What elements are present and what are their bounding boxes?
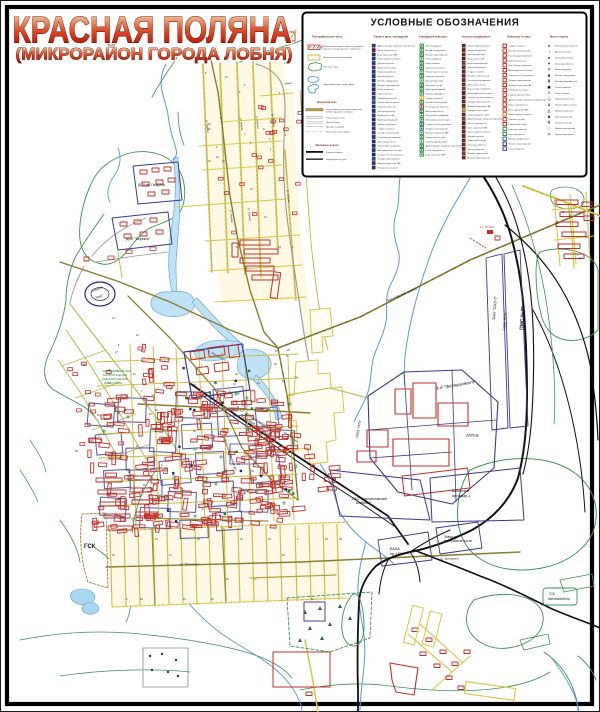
svg-text:Кинотеатр летний: Кинотеатр летний <box>468 58 485 61</box>
svg-text:Дорожная сеть: Дорожная сеть <box>317 100 337 104</box>
svg-text:♟: ♟ <box>547 73 551 78</box>
svg-text:Больница районная: Больница районная <box>509 128 527 131</box>
svg-text:Музей краеведческий: Музей краеведческий <box>555 127 575 130</box>
svg-text:Банк, отделение КМБ: Банк, отделение КМБ <box>426 154 447 156</box>
svg-text:Гостиница дом приезжих: Гостиница дом приезжих <box>378 137 401 139</box>
svg-text:Милиция отделение ГАИ: Милиция отделение ГАИ <box>468 105 492 108</box>
svg-text:Рынок городской: Рынок городской <box>555 86 571 89</box>
svg-text:Магазин промтоварный: Магазин промтоварный <box>555 80 577 83</box>
svg-text:Магазин промтоварный: Магазин промтоварный <box>378 84 400 87</box>
svg-text:Бассейн плавательный: Бассейн плавательный <box>378 132 400 135</box>
svg-text:☗: ☗ <box>547 84 551 89</box>
svg-text:Кинотеатр летний: Кинотеатр летний <box>426 84 443 87</box>
svg-text:♛: ♛ <box>547 120 551 125</box>
svg-text:Поликлиника город.: Поликлиника город. <box>509 124 528 126</box>
svg-text:♞: ♞ <box>547 114 551 119</box>
svg-text:Станция тех. обслуживания: Станция тех. обслуживания <box>426 124 452 126</box>
svg-text:Детский сад ясли: Детский сад ясли <box>555 51 571 54</box>
svg-text:Аптека дежурная: Аптека дежурная <box>509 133 525 136</box>
svg-text:Автостанция кассы: Автостанция кассы <box>468 83 486 86</box>
svg-text:Магазин продуктовый: Магазин продуктовый <box>426 49 446 52</box>
svg-text:Ж-д станция платформа: Ж-д станция платформа <box>426 114 450 117</box>
svg-text:Рынок городской: Рынок городской <box>378 88 394 91</box>
svg-text:УСЛОВНЫЕ ОБОЗНАЧЕНИЯ: УСЛОВНЫЕ ОБОЗНАЧЕНИЯ <box>371 18 520 29</box>
svg-text:"Автолюбитель": "Автолюбитель" <box>547 597 571 601</box>
svg-text:Кафе столовая: Кафе столовая <box>378 92 392 95</box>
svg-text:Магазин продуктовый: Магазин продуктовый <box>378 79 398 82</box>
svg-text:(МИКРОРАЙОН ГОРОДА ЛОБНЯ): (МИКРОРАЙОН ГОРОДА ЛОБНЯ) <box>16 45 293 64</box>
svg-text:Автозаправочная станция: Автозаправочная станция <box>468 92 492 95</box>
svg-text:Милиция отделение ГАИ: Милиция отделение ГАИ <box>509 84 533 87</box>
svg-text:Ж-д станция платформа: Ж-д станция платформа <box>378 145 402 148</box>
svg-text:Магазин промтоварный: Магазин промтоварный <box>509 143 531 146</box>
svg-text:Стадион спортзал: Стадион спортзал <box>378 128 396 130</box>
svg-text:Милиция отделение ГАИ: Милиция отделение ГАИ <box>426 132 450 135</box>
svg-text:Лес, парк, сквер: Лес, парк, сквер <box>323 67 339 69</box>
svg-text:Ремонт обуви и охраны: Ремонт обуви и охраны <box>468 46 490 48</box>
svg-text:Места отдыха: Места отдыха <box>550 35 569 39</box>
svg-text:Библиотека детская: Библиотека детская <box>378 107 397 109</box>
svg-text:Сбербанк филиал №25: Сбербанк филиал №25 <box>468 113 491 116</box>
svg-text:Детский сад ясли: Детский сад ясли <box>468 135 484 138</box>
svg-text:Аптека дежурная: Аптека дежурная <box>378 75 394 78</box>
svg-text:Автозаправочная станция: Автозаправочная станция <box>509 69 533 72</box>
svg-text:☽: ☽ <box>547 49 551 54</box>
svg-text:Пожарная часть депо: Пожарная часть депо <box>378 167 399 169</box>
svg-text:Вабинский: Вабинский <box>452 489 469 493</box>
svg-text:Милиция отделение ГАИ: Милиция отделение ГАИ <box>378 162 402 165</box>
svg-text:Дом культуры клуб: Дом культуры клуб <box>378 111 396 113</box>
svg-text:Проезды и проулки: Проезды и проулки <box>326 127 344 129</box>
svg-text:Аптека дежурная: Аптека дежурная <box>426 45 442 48</box>
svg-text:Дом культуры клуб: Дом культуры клуб <box>426 80 444 82</box>
svg-text:Почта: отделение св.: Почта: отделение св. <box>378 50 398 52</box>
svg-text:Станция тех. обслуживания: Станция тех. обслуживания <box>509 75 535 77</box>
svg-text:ул. Мичурина: ул. Мичурина <box>440 556 459 561</box>
svg-text:Автозаправочная станция: Автозаправочная станция <box>378 149 402 152</box>
svg-text:Школа средняя обществ.: Школа средняя обществ. <box>468 132 492 134</box>
svg-text:Администрация городского образ: Администрация городского образования <box>509 99 547 102</box>
svg-text:♝: ♝ <box>547 102 551 107</box>
svg-text:Больница районная: Больница районная <box>555 62 573 65</box>
svg-text:Парикмахерская быт.: Парикмахерская быт. <box>426 67 446 69</box>
svg-text:Библиотека детская: Библиотека детская <box>426 76 445 78</box>
svg-text:Церковь приходская: Церковь приходская <box>378 124 397 126</box>
svg-text:Кафе столовая: Кафе столовая <box>426 62 440 65</box>
svg-text:⛪: ⛪ <box>547 108 552 113</box>
svg-text:Станция тех. обслуживания: Станция тех. обслуживания <box>468 97 494 99</box>
svg-text:Почта: отделение св.: Почта: отделение св. <box>468 123 488 125</box>
svg-text:Магазин продуктовый: Магазин продуктовый <box>468 152 488 155</box>
svg-text:АТП-6: АТП-6 <box>466 433 479 438</box>
svg-text:Стадион спортзал: Стадион спортзал <box>468 71 486 73</box>
svg-text:Гидрография: реки, озёра, пруд: Гидрография: реки, озёра, пруды <box>323 83 354 86</box>
svg-text:Школа средняя обществ.: Школа средняя обществ. <box>378 59 402 61</box>
svg-text:Детский сад ясли: Детский сад ясли <box>378 62 394 65</box>
svg-text:Банк, отделение КМБ: Банк, отделение КМБ <box>509 109 530 111</box>
svg-text:Почта: отделение св.: Почта: отделение св. <box>426 150 446 152</box>
svg-text:Сбербанк филиал №25: Сбербанк филиал №25 <box>426 140 449 143</box>
svg-text:Транспорт и связь: Транспорт и связь <box>507 35 531 39</box>
svg-text:комбинат": комбинат" <box>356 501 371 505</box>
svg-text:Бассейн плавательный: Бассейн плавательный <box>426 101 448 104</box>
svg-text:Полевые и лесные дороги: Полевые и лесные дороги <box>326 131 350 133</box>
svg-text:Администрация городского образ: Администрация городского образования <box>378 45 416 48</box>
svg-text:♤: ♤ <box>547 126 551 131</box>
svg-text:Библиотека детская: Библиотека детская <box>555 111 574 113</box>
svg-text:Рынок городской: Рынок городской <box>509 148 525 151</box>
svg-text:♦: ♦ <box>548 43 550 48</box>
svg-text:Сбербанк филиал №25: Сбербанк филиал №25 <box>509 94 532 97</box>
svg-text:Магазин промтоварный: Магазин промтоварный <box>426 53 448 56</box>
svg-text:Автозаправочная станция: Автозаправочная станция <box>426 119 450 122</box>
svg-text:Дом культуры клуб: Дом культуры клуб <box>555 116 573 118</box>
svg-text:Телефон переговорный: Телефон переговорный <box>509 79 531 82</box>
svg-text:Гостиница дом приезжих: Гостиница дом приезжих <box>509 55 532 57</box>
svg-text:Пожарная часть депо: Пожарная часть депо <box>468 110 489 112</box>
svg-text:Школа средняя обществ.: Школа средняя обществ. <box>509 114 533 116</box>
svg-text:Учреждения культуры: Учреждения культуры <box>419 35 448 39</box>
svg-text:Аптека дежурная: Аптека дежурная <box>468 148 484 151</box>
svg-text:Ж-д станция платформа: Ж-д станция платформа <box>468 88 492 91</box>
svg-text:Школа средняя обществ.: Школа средняя обществ. <box>555 46 579 48</box>
svg-text:Гостиница дом приезжих: Гостиница дом приезжих <box>468 80 491 82</box>
svg-text:Автостанция кассы: Автостанция кассы <box>378 140 396 143</box>
svg-text:Парикмахерская быт.: Парикмахерская быт. <box>555 99 575 101</box>
svg-text:ДОЛ "Березка": ДОЛ "Березка" <box>126 237 151 241</box>
svg-text:Телефон переговорный: Телефон переговорный <box>468 101 490 104</box>
svg-text:ГСК: ГСК <box>84 544 96 550</box>
svg-text:пр. ЦЕН: пр. ЦЕН <box>390 552 405 556</box>
svg-text:Кафе столовая: Кафе столовая <box>555 92 569 95</box>
svg-text:Почта: отделение св.: Почта: отделение св. <box>509 104 529 106</box>
svg-text:Кинотеатр летний: Кинотеатр летний <box>378 114 395 117</box>
svg-text:♜: ♜ <box>547 78 551 83</box>
svg-text:Банк, отделение КМБ: Банк, отделение КМБ <box>378 54 399 56</box>
svg-text:Прочие улицы: Прочие улицы <box>326 122 340 124</box>
svg-text:Подъездные ж-д пути: Подъездные ж-д пути <box>326 159 346 161</box>
svg-text:Дом культуры клуб: Дом культуры клуб <box>468 54 486 56</box>
svg-text:Бассейн плавательный: Бассейн плавательный <box>468 75 490 78</box>
svg-text:ЗАСТРОЙКА: ЗАСТРОЙКА <box>104 381 122 385</box>
svg-text:Банки и проч. учреждения: Банки и проч. учреждения <box>374 35 408 39</box>
svg-text:Автостанция кассы: Автостанция кассы <box>426 110 444 113</box>
svg-text:Телефон переговорный: Телефон переговорный <box>378 158 400 161</box>
svg-text:Парикмахерская быт.: Парикмахерская быт. <box>378 98 398 100</box>
svg-text:Поликлиника город.: Поликлиника город. <box>555 57 574 59</box>
svg-text:ГСК: ГСК <box>549 592 555 596</box>
svg-text:Железные дороги: Железные дороги <box>315 143 339 147</box>
svg-text:Ремонт обуви и охраны: Ремонт обуви и охраны <box>555 105 577 107</box>
svg-text:Железные дороги: Железные дороги <box>326 152 343 154</box>
svg-text:Улицы других типов: Улицы других типов <box>326 117 345 119</box>
svg-text:Кинотеатр летний: Кинотеатр летний <box>555 121 572 124</box>
svg-text:Станция тех. обслуживания: Станция тех. обслуживания <box>378 154 404 156</box>
svg-text:Телефон переговорный: Телефон переговорный <box>426 127 448 130</box>
svg-text:Малоэтажная жилая застройка: Малоэтажная жилая застройка <box>323 56 353 59</box>
svg-text:Пожарная часть депо: Пожарная часть депо <box>426 137 447 139</box>
svg-text:Бассейн плавательный: Бассейн плавательный <box>509 50 531 53</box>
svg-text:Больница районная: Больница районная <box>468 144 486 147</box>
svg-text:Банк, отделение КМБ: Банк, отделение КМБ <box>468 127 489 129</box>
svg-text:Ремонт обуви и охраны: Ремонт обуви и охраны <box>426 72 448 74</box>
svg-text:Детский сад ясли: Детский сад ясли <box>509 118 525 121</box>
svg-text:Стадион спортзал: Стадион спортзал <box>509 46 527 48</box>
svg-text:Библиотека детская: Библиотека детская <box>468 50 487 52</box>
svg-text:переработке кости: переработке кости <box>444 539 472 543</box>
svg-text:ул. Мичурина: ул. Мичурина <box>180 562 199 566</box>
svg-text:Магазин продуктовый: Магазин продуктовый <box>509 138 529 141</box>
svg-text:отдельно стоящие здания и соор: отдельно стоящие здания и сооружения <box>323 49 360 51</box>
svg-text:Больница районная: Больница районная <box>378 71 396 74</box>
svg-text:Музей краеведческий: Музей краеведческий <box>426 88 446 91</box>
svg-text:♙: ♙ <box>547 90 551 95</box>
svg-text:Автостанция кассы: Автостанция кассы <box>509 59 527 62</box>
svg-text:Поликлиника город.: Поликлиника город. <box>378 67 397 69</box>
svg-text:Ж-д станция платформа: Ж-д станция платформа <box>509 64 533 67</box>
svg-text:⚓: ⚓ <box>547 96 552 101</box>
svg-text:Церковь приходская: Церковь приходская <box>426 93 445 95</box>
svg-text:Музей краеведческий: Музей краеведческий <box>468 62 488 65</box>
svg-text:Аптека дежурная: Аптека дежурная <box>555 68 571 71</box>
svg-text:Пожарная часть депо: Пожарная часть депо <box>509 90 530 92</box>
svg-text:и №№ маршрутов автобусов: и №№ маршрутов автобусов <box>326 110 353 113</box>
svg-text:Топографическая часть: Топографическая часть <box>312 35 343 39</box>
svg-text:Церковь приходская: Церковь приходская <box>468 67 487 69</box>
svg-text:Церковь приходская: Церковь приходская <box>555 134 574 136</box>
svg-text:БАЗА: БАЗА <box>390 547 400 551</box>
svg-text:ДОЛ им. Гагарина: ДОЛ им. Гагарина <box>138 183 165 187</box>
svg-text:КРАСНАЯ ПОЛЯНА: КРАСНАЯ ПОЛЯНА <box>13 10 292 51</box>
svg-text:Поликлиника город.: Поликлиника город. <box>468 140 487 142</box>
svg-text:Автосвар-1: Автосвар-1 <box>452 494 470 498</box>
svg-text:Администрация городского образ: Администрация городского образования <box>468 118 506 121</box>
svg-text:Администрация городского образ: Администрация городского образования <box>426 145 464 148</box>
svg-text:Частные предприятия: Частные предприятия <box>462 35 491 39</box>
svg-text:Магазин продуктовый: Магазин продуктовый <box>555 74 575 77</box>
svg-text:ст. "Лобня": ст. "Лобня" <box>480 225 495 229</box>
svg-text:Музей краеведческий: Музей краеведческий <box>378 119 398 122</box>
svg-text:Гостиница дом приезжих: Гостиница дом приезжих <box>426 107 449 109</box>
svg-text:Ремонт обуви и охраны: Ремонт обуви и охраны <box>378 102 400 104</box>
svg-text:Рынок городской: Рынок городской <box>426 58 442 61</box>
svg-text:Стадион спортзал: Стадион спортзал <box>426 98 444 100</box>
svg-text:Магазин промтоварный: Магазин промтоварный <box>468 156 490 159</box>
